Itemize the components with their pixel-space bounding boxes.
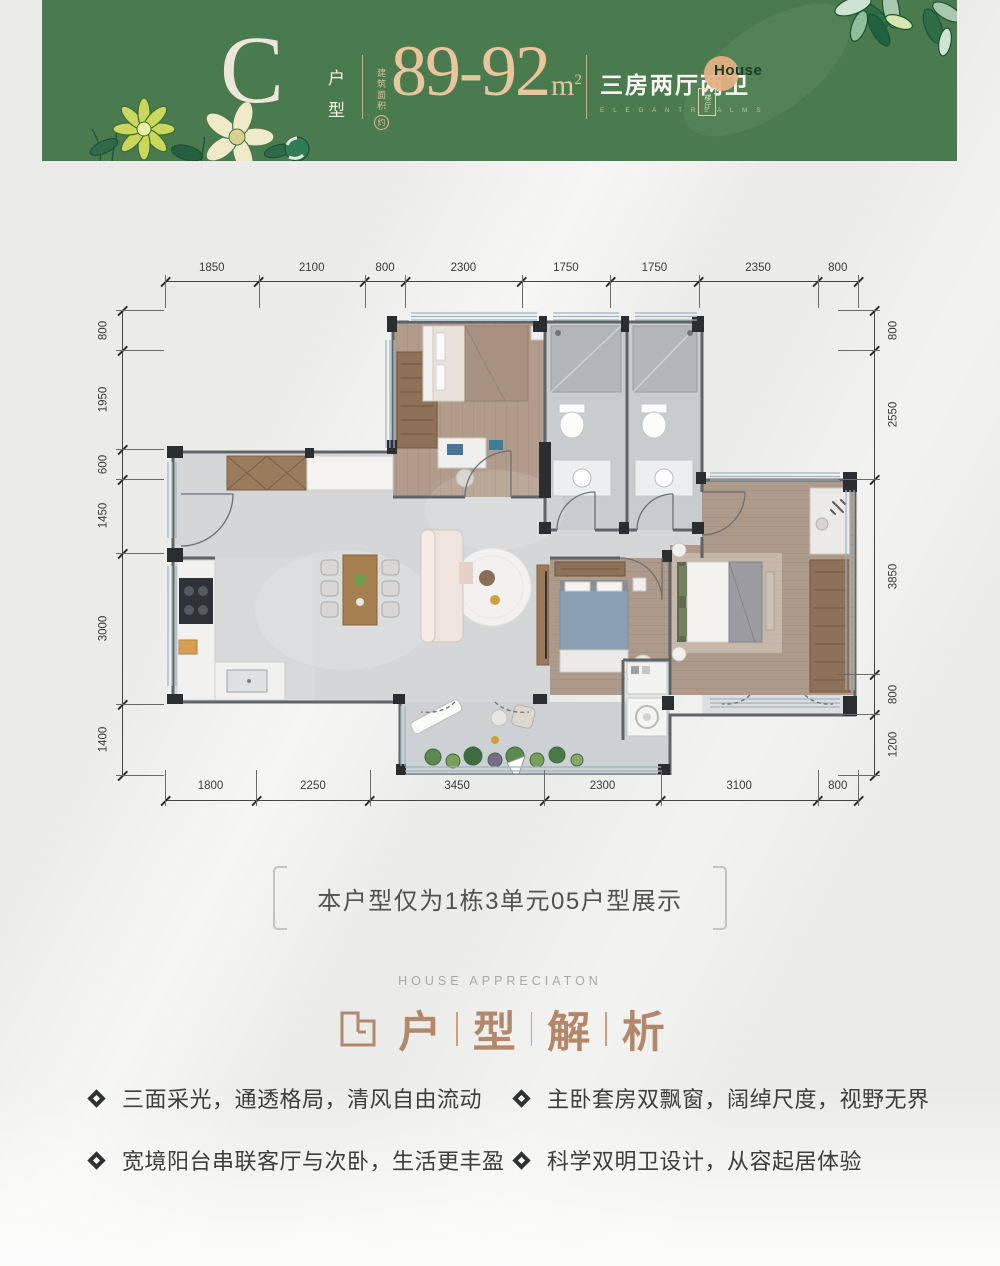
- section-eyebrow: HOUSE APPRECIATON: [0, 974, 1000, 988]
- title-char: 户: [398, 998, 441, 1060]
- dimension-label: 800: [818, 262, 858, 274]
- unit-type-char: 户: [328, 64, 345, 89]
- dimension-mark: [838, 310, 880, 311]
- floor-plan-rendering: [165, 310, 858, 775]
- dimension-label: 1800: [165, 780, 256, 792]
- area-label: 建筑面积 约: [374, 68, 389, 130]
- dimension-mark: [116, 553, 164, 554]
- dimension-mark: [838, 350, 880, 351]
- dimension-mark: 800255038508001200: [858, 310, 916, 775]
- dimension-mark: [116, 704, 164, 705]
- dimension-label: 800: [888, 671, 901, 717]
- title-separator: [605, 1012, 607, 1046]
- dimension-mark: 18002250345023003100800: [165, 766, 858, 812]
- title-separator: [531, 1012, 533, 1046]
- dimension-mark: [522, 275, 523, 308]
- dimension-label: 2550: [888, 392, 901, 438]
- dimension-mark: [838, 479, 880, 480]
- dimension-label: 1400: [98, 717, 111, 763]
- dimension-label: 2350: [699, 262, 818, 274]
- area-approx-circle: 约: [374, 115, 389, 130]
- dimension-mark: [116, 479, 164, 480]
- header-banner: C 户 型 建筑面积 约 89-92 m2 三房两厅两卫 E L E G A N…: [42, 0, 957, 161]
- dimension-mark: [838, 714, 880, 715]
- title-char: 型: [473, 998, 516, 1060]
- dimension-mark: [116, 775, 164, 776]
- dimension-label: 1200: [888, 722, 901, 768]
- dimension-label: 2250: [256, 780, 370, 792]
- dimension-label: 1750: [522, 262, 611, 274]
- section-title: 户 型 解 析: [0, 998, 1000, 1060]
- banner-divider: [586, 55, 587, 119]
- dimension-mark: [259, 275, 260, 308]
- title-separator: [456, 1012, 458, 1046]
- dimension-label: 800: [365, 262, 405, 274]
- dimension-mark: [165, 800, 858, 801]
- dimension-label: 600: [98, 441, 111, 487]
- dimension-label: 2300: [405, 262, 521, 274]
- unit-type-label: 户 型: [328, 64, 345, 121]
- unit-type-char: 型: [328, 96, 345, 121]
- dimension-mark: [405, 275, 406, 308]
- dimension-mark: [365, 275, 366, 308]
- title-char: 解: [547, 998, 590, 1060]
- dimension-mark: [165, 275, 166, 308]
- dimension-label: 800: [818, 780, 858, 792]
- dimension-mark: [858, 275, 859, 308]
- flower-decoration-left: [82, 85, 332, 161]
- dimension-mark: [116, 310, 164, 311]
- dimension-mark: [818, 275, 819, 308]
- feature-text: 三面采光，通透格局，清风自由流动: [122, 1082, 482, 1114]
- caption-right-bracket: [713, 866, 727, 930]
- banner-divider: [362, 55, 363, 119]
- area-unit: m2: [551, 69, 582, 103]
- feature-item: 科学双明卫设计，从容起居体验: [513, 1144, 862, 1176]
- dimension-label: 800: [98, 307, 111, 353]
- dimension-label: 800: [888, 307, 901, 353]
- house-seal: 楼厅: [698, 88, 716, 116]
- diamond-bullet-icon: [512, 1151, 530, 1169]
- feature-text: 主卧套房双飘窗，阔绰尺度，视野无界: [547, 1082, 930, 1114]
- floor-plan-icon: [335, 1006, 381, 1052]
- feature-text: 科学双明卫设计，从容起居体验: [547, 1144, 862, 1176]
- dimension-mark: [874, 310, 875, 775]
- feature-text: 宽境阳台串联客厅与次卧，生活更丰盈: [122, 1144, 505, 1176]
- diamond-bullet-icon: [87, 1089, 105, 1107]
- dimension-label: 3450: [370, 780, 545, 792]
- feature-item: 主卧套房双飘窗，阔绰尺度，视野无界: [513, 1082, 930, 1114]
- dimension-label: 3000: [98, 605, 111, 651]
- dimension-mark: [699, 275, 700, 308]
- title-char: 析: [622, 998, 665, 1060]
- dimension-mark: [116, 449, 164, 450]
- dimension-mark: 8001950600145030001400: [92, 310, 150, 775]
- caption-left-bracket: [273, 866, 287, 930]
- dimension-label: 1950: [98, 377, 111, 423]
- dimension-mark: 185021008002300175017502350800: [165, 258, 858, 310]
- area-value: 89-92 m2: [391, 26, 582, 116]
- poster-page: C 户 型 建筑面积 约 89-92 m2 三房两厅两卫 E L E G A N…: [0, 0, 1000, 1266]
- dimension-label: 1850: [165, 262, 259, 274]
- feature-item: 三面采光，通透格局，清风自由流动: [88, 1082, 482, 1114]
- dimension-mark: [116, 350, 164, 351]
- caption: 本户型仅为1栋3单元05户型展示: [0, 866, 1000, 930]
- dimension-label: 3100: [661, 780, 818, 792]
- diamond-bullet-icon: [87, 1151, 105, 1169]
- diamond-bullet-icon: [512, 1089, 530, 1107]
- leaf-decoration-right: [787, 0, 957, 75]
- dimension-mark: [165, 281, 858, 282]
- unit-type-letter: C: [220, 22, 284, 118]
- dimension-label: 1450: [98, 493, 111, 539]
- dimension-label: 1750: [610, 262, 699, 274]
- dimension-mark: [610, 275, 611, 308]
- house-badge-text: House: [714, 62, 762, 79]
- caption-text: 本户型仅为1栋3单元05户型展示: [317, 881, 682, 916]
- dimension-mark: [838, 775, 880, 776]
- dimension-label: 3850: [888, 554, 901, 600]
- dimension-mark: [838, 674, 880, 675]
- feature-item: 宽境阳台串联客厅与次卧，生活更丰盈: [88, 1144, 505, 1176]
- dimension-label: 2300: [544, 780, 660, 792]
- dimension-label: 2100: [259, 262, 365, 274]
